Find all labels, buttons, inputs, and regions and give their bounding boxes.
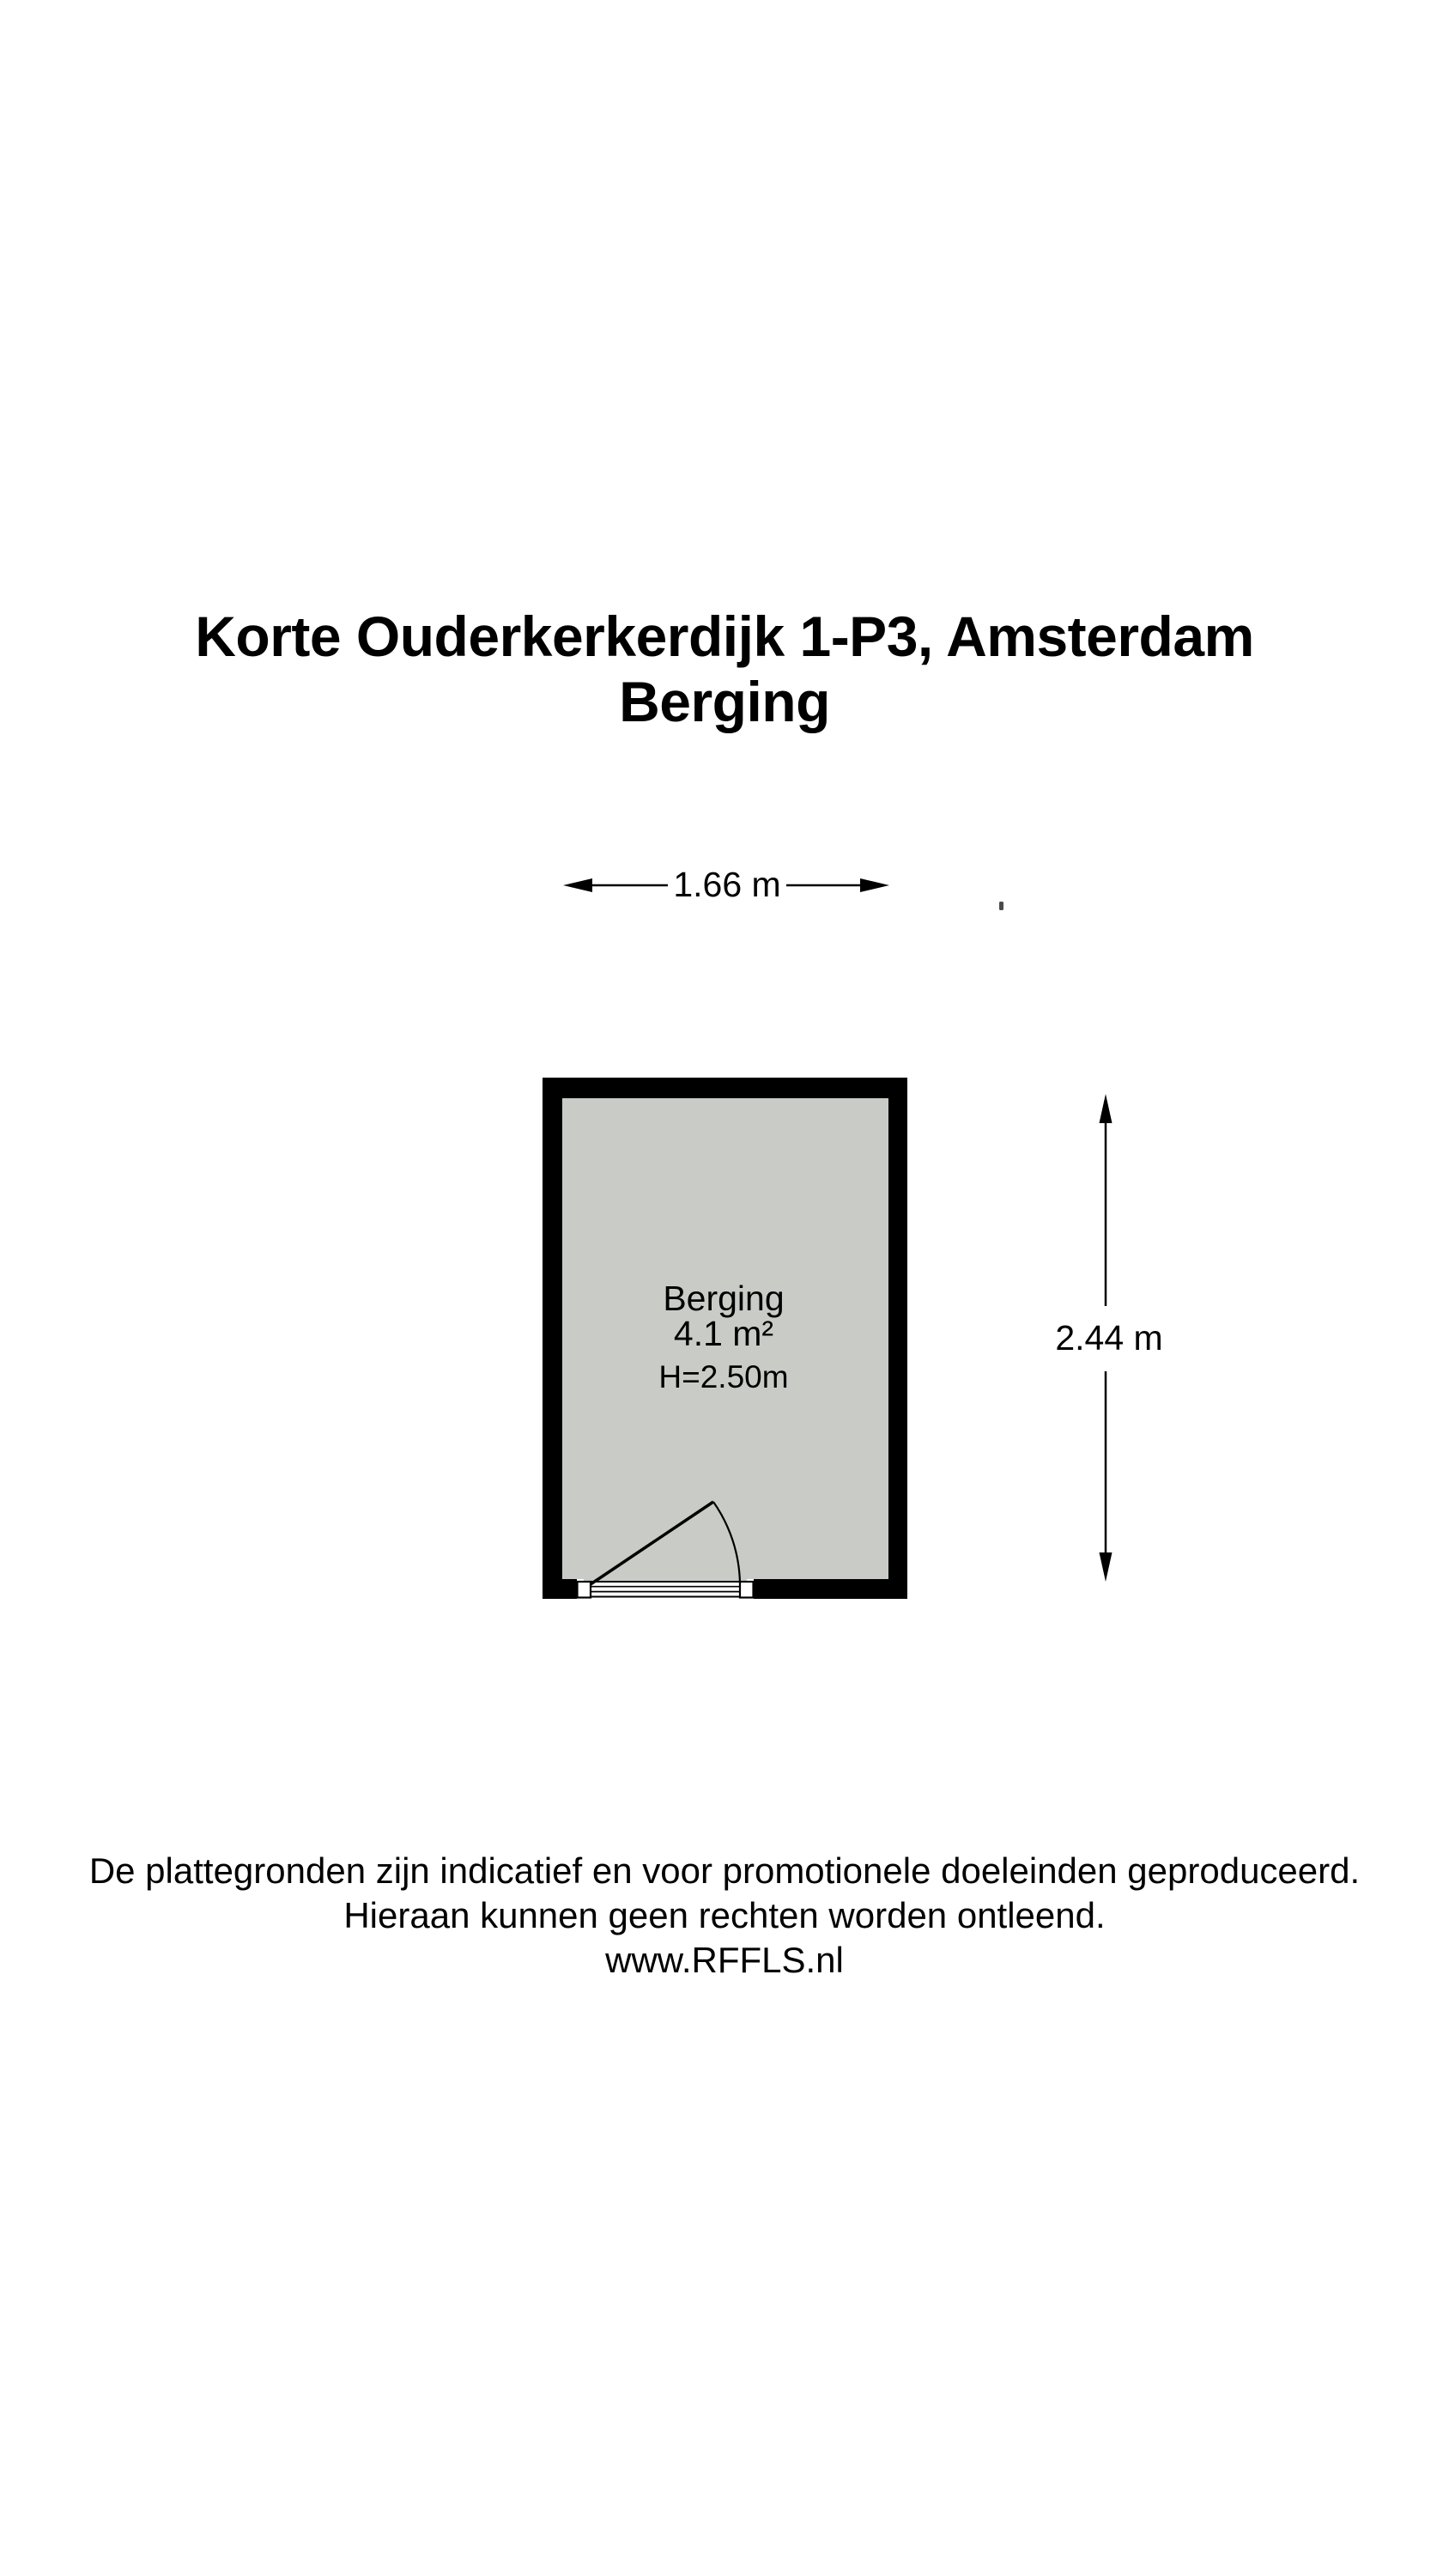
- door-threshold: [591, 1582, 740, 1597]
- floorplan-drawing: 1.66 m Berging 4.1 m² H=2.50m: [0, 0, 1449, 2576]
- door-threshold-frame: [591, 1582, 740, 1597]
- depth-dimension-label: 2.44 m: [1055, 1318, 1162, 1358]
- door-jamb-left: [578, 1582, 591, 1598]
- room-ceiling-height-label: H=2.50m: [658, 1359, 788, 1394]
- width-dimension-label: 1.66 m: [673, 865, 780, 904]
- depth-dimension: 2.44 m: [1055, 1094, 1162, 1582]
- arrow-up-icon: [1100, 1094, 1113, 1123]
- room-area-label: 4.1 m²: [674, 1314, 773, 1353]
- arrow-down-icon: [1100, 1552, 1113, 1582]
- arrow-left-icon: [563, 878, 592, 892]
- door-jamb-right: [740, 1582, 754, 1598]
- disclaimer-line-1: De plattegronden zijn indicatief en voor…: [0, 1849, 1449, 1893]
- disclaimer-website: www.RFFLS.nl: [0, 1938, 1449, 1983]
- room-name-label: Berging: [663, 1279, 784, 1318]
- arrow-right-icon: [860, 878, 889, 892]
- disclaimer: De plattegronden zijn indicatief en voor…: [0, 1849, 1449, 1983]
- print-speck: [999, 902, 1003, 910]
- width-dimension: 1.66 m: [563, 865, 889, 904]
- disclaimer-line-2: Hieraan kunnen geen rechten worden ontle…: [0, 1893, 1449, 1938]
- floorplan-page: Korte Ouderkerkerdijk 1-P3, Amsterdam Be…: [0, 0, 1449, 2576]
